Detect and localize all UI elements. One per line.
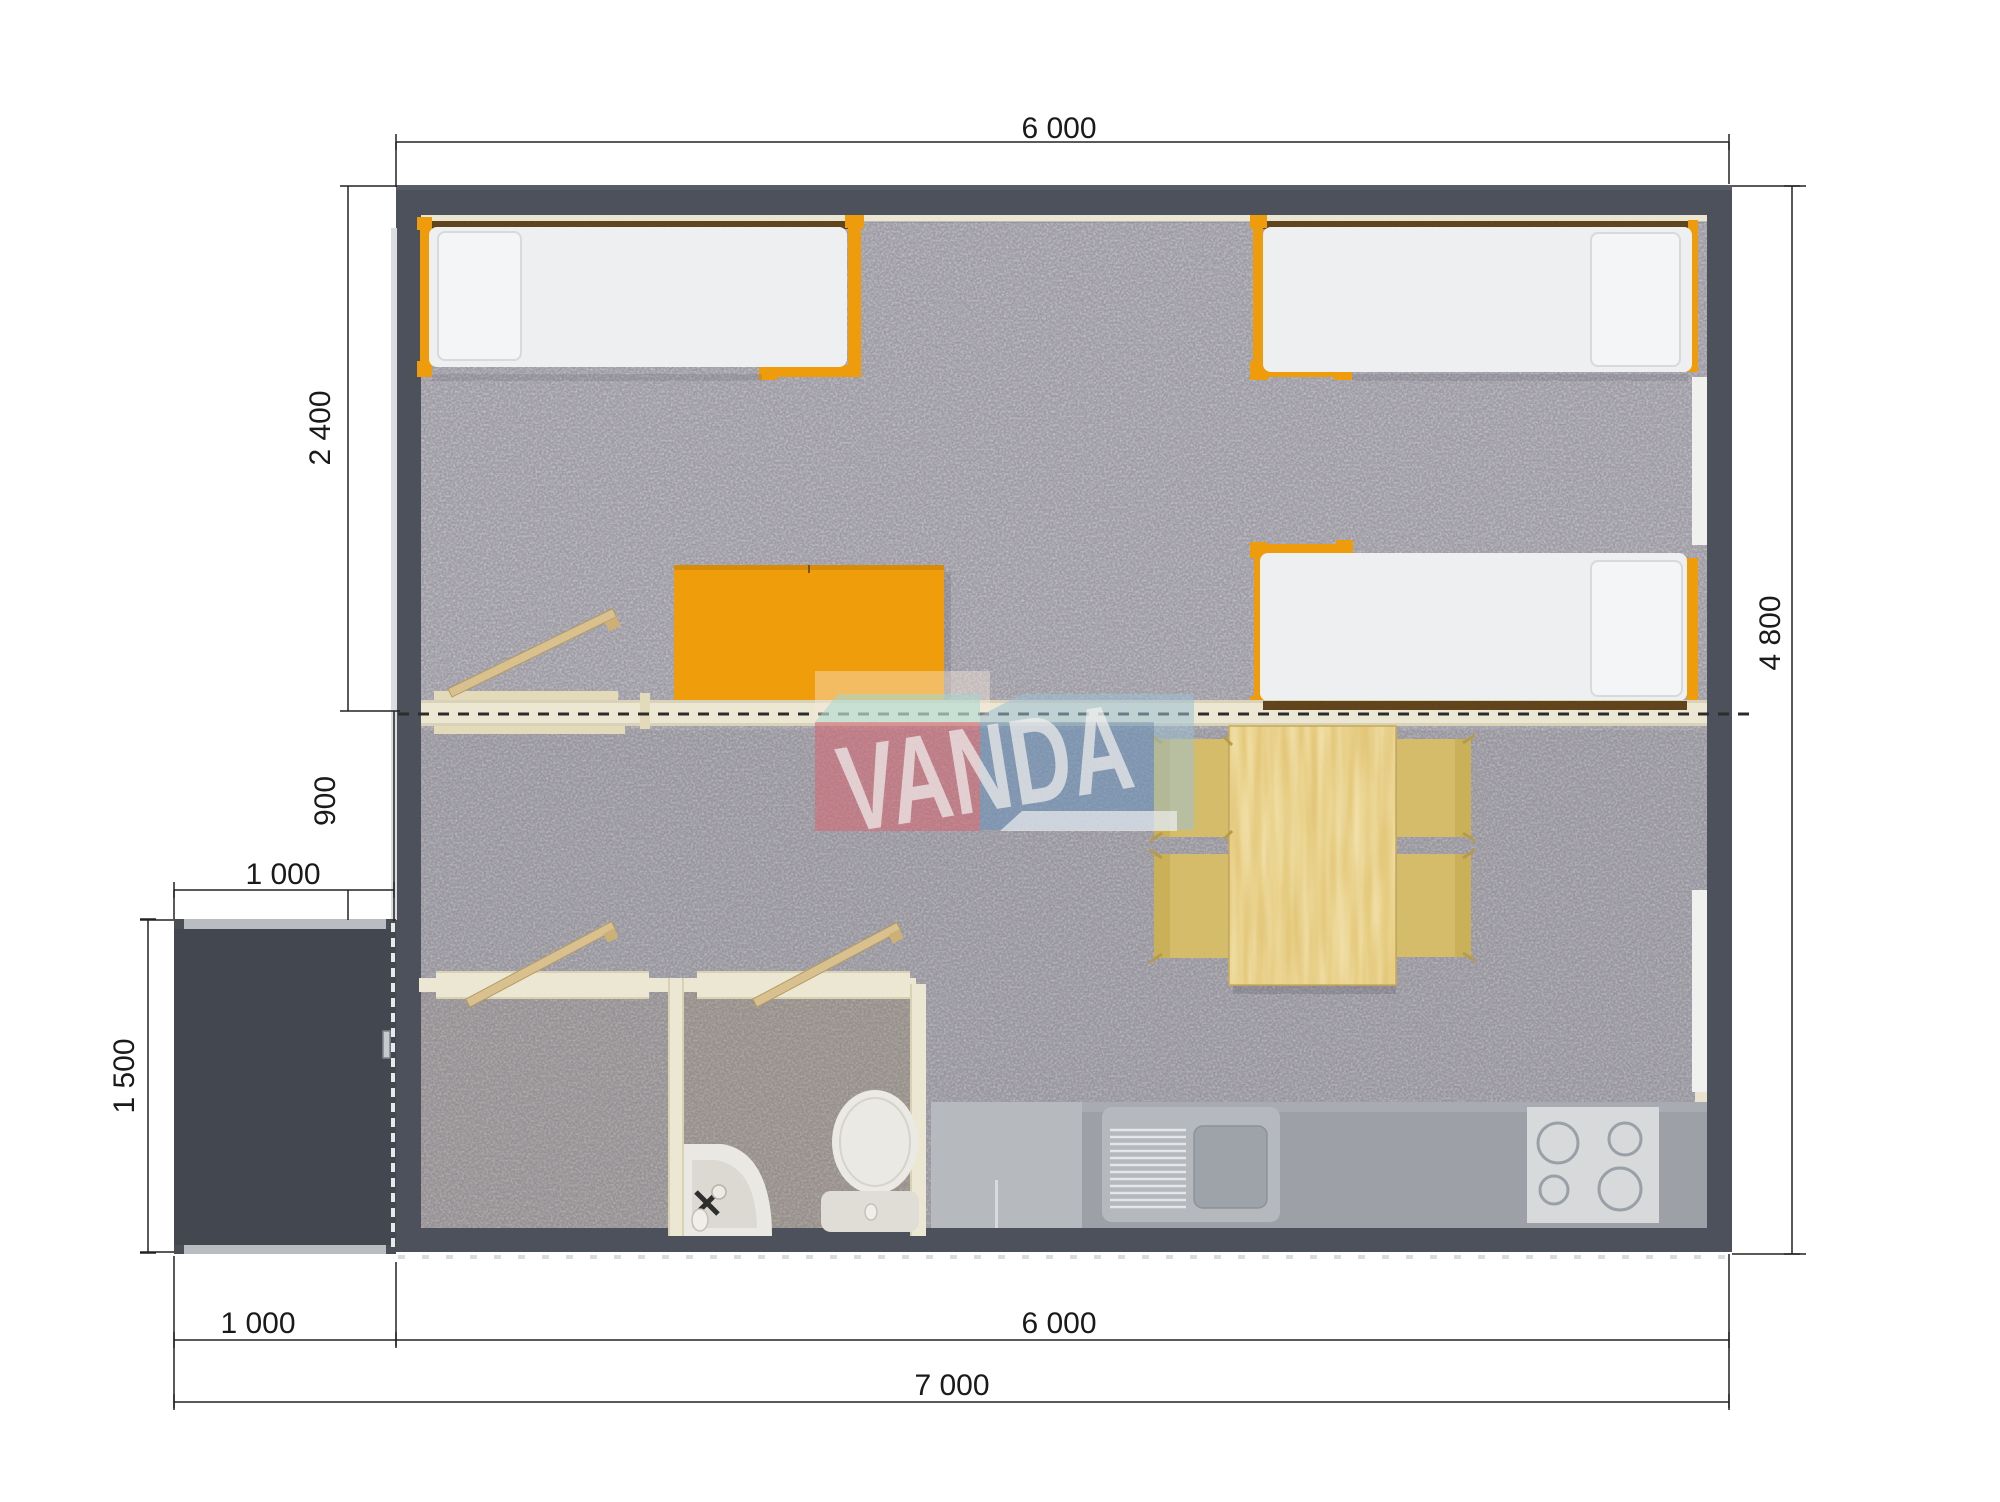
svg-text:2 400: 2 400 bbox=[304, 390, 337, 465]
svg-text:6 000: 6 000 bbox=[1021, 1307, 1096, 1340]
svg-text:1 500: 1 500 bbox=[108, 1038, 141, 1113]
svg-text:6 000: 6 000 bbox=[1021, 112, 1096, 145]
svg-text:7 000: 7 000 bbox=[914, 1369, 989, 1402]
svg-text:900: 900 bbox=[309, 776, 342, 826]
svg-text:1 000: 1 000 bbox=[245, 858, 320, 891]
svg-text:1 000: 1 000 bbox=[220, 1307, 295, 1340]
svg-text:4 800: 4 800 bbox=[1754, 595, 1787, 670]
